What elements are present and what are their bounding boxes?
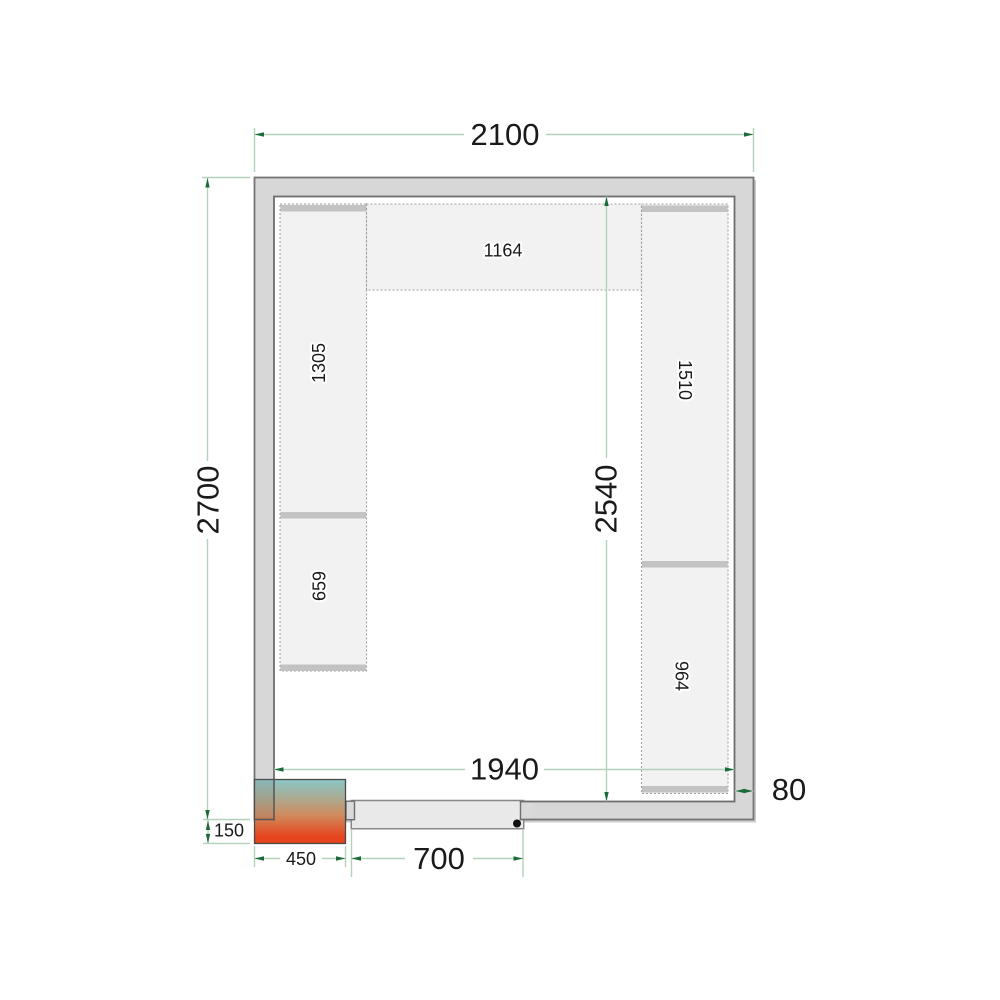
svg-text:80: 80 <box>772 772 806 807</box>
svg-text:964: 964 <box>672 661 692 691</box>
svg-text:1164: 1164 <box>484 241 523 261</box>
svg-text:700: 700 <box>413 841 465 876</box>
svg-text:1510: 1510 <box>675 360 695 400</box>
svg-text:1940: 1940 <box>470 751 539 786</box>
svg-text:2700: 2700 <box>191 466 226 535</box>
svg-text:450: 450 <box>286 849 316 869</box>
svg-text:2100: 2100 <box>471 117 540 152</box>
svg-text:2540: 2540 <box>589 465 624 534</box>
svg-text:150: 150 <box>214 821 244 841</box>
svg-text:659: 659 <box>310 571 330 601</box>
svg-text:1305: 1305 <box>309 343 329 383</box>
